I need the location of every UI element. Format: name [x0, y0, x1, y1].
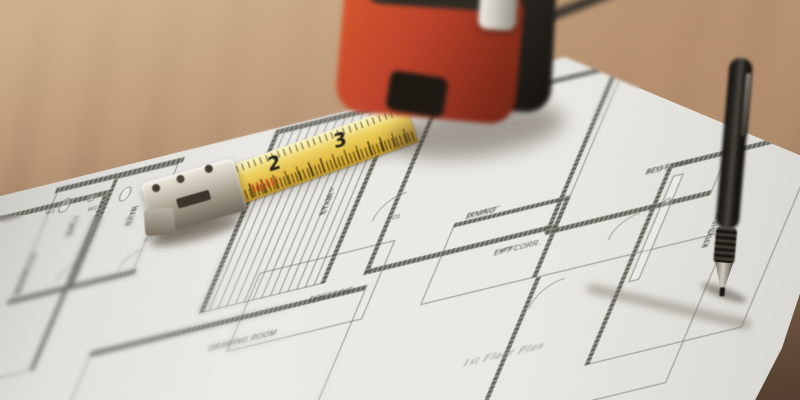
photo-vignette: [0, 0, 800, 400]
photo-scene: BED ROOM 12'x16'6" BATH 4'x8' BATH 4'9"x…: [0, 0, 800, 400]
